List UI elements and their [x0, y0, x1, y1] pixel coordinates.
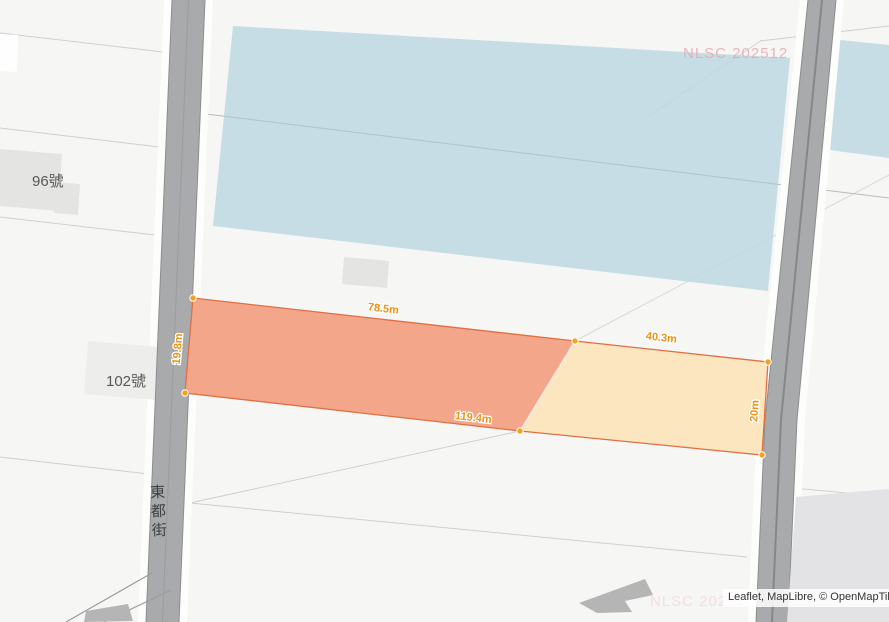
measurement-label-right: 20m [748, 399, 761, 422]
building-footprint-blue-northeast [830, 40, 889, 158]
vertex-marker[interactable] [190, 295, 196, 301]
vertex-marker[interactable] [517, 428, 523, 434]
building-northwest [0, 34, 18, 72]
building-102 [84, 341, 160, 400]
map-tiles: 78.5m 40.3m 119.4m 19.8m 20m 96號 102號 NL… [0, 0, 889, 622]
vertex-marker[interactable] [182, 390, 188, 396]
house-label-96: 96號 [32, 173, 64, 190]
building-small [342, 257, 389, 288]
vertex-marker[interactable] [765, 359, 771, 365]
street-name-label: 東都街 [146, 484, 168, 542]
house-label-102: 102號 [106, 373, 146, 390]
map-canvas[interactable]: 78.5m 40.3m 119.4m 19.8m 20m 96號 102號 NL… [0, 0, 889, 622]
vertex-marker[interactable] [572, 338, 578, 344]
nlsc-watermark: NLSC 202512 [683, 45, 788, 62]
vertex-marker[interactable] [759, 452, 765, 458]
map-attribution[interactable]: Leaflet, MapLibre, © OpenMapTiles | © Op… [723, 589, 889, 607]
